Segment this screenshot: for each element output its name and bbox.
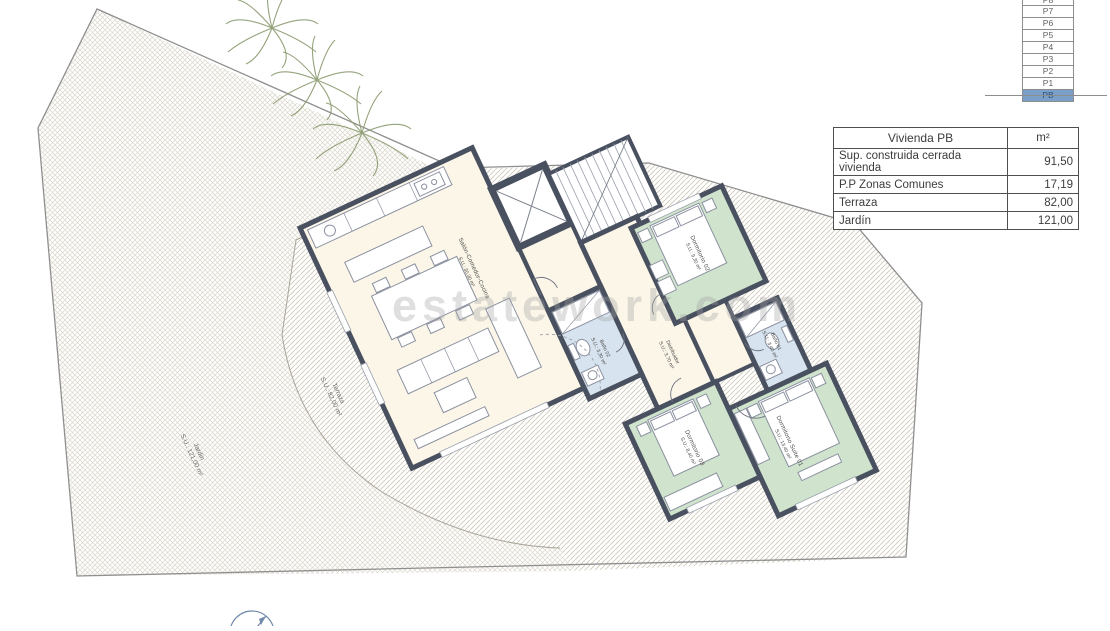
summary-table: Vivienda PB m² Sup. construida cerrada v… [833, 127, 1079, 230]
level-p4[interactable]: P4 [1022, 42, 1074, 54]
row-value: 17,19 [1008, 176, 1079, 194]
table-unit-header: m² [1008, 128, 1079, 149]
level-p2[interactable]: P2 [1022, 66, 1074, 78]
row-label: Terraza [834, 194, 1008, 212]
level-p6[interactable]: P6 [1022, 18, 1074, 30]
ground-line [985, 95, 1107, 96]
table-row: Terraza 82,00 [834, 194, 1079, 212]
row-label: P.P Zonas Comunes [834, 176, 1008, 194]
watermark: estatework.com [392, 280, 852, 332]
row-value: 82,00 [1008, 194, 1079, 212]
floor-plan-page: Salón-Comedor-Cocina S.U.: 30,30 m² Dorm… [0, 0, 1110, 626]
level-p1[interactable]: P1 [1022, 78, 1074, 90]
table-title: Vivienda PB [834, 128, 1008, 149]
row-value: 121,00 [1008, 212, 1079, 230]
floor-level-selector: P8 P7 P6 P5 P4 P3 P2 P1 PB [1022, 0, 1074, 102]
row-value: 91,50 [1008, 149, 1079, 176]
table-row: P.P Zonas Comunes 17,19 [834, 176, 1079, 194]
level-p5[interactable]: P5 [1022, 30, 1074, 42]
level-pb-selected[interactable]: PB [1022, 90, 1074, 102]
compass-icon [230, 611, 274, 626]
table-row: Sup. construida cerrada vivienda 91,50 [834, 149, 1079, 176]
level-p7[interactable]: P7 [1022, 6, 1074, 18]
row-label: Jardín [834, 212, 1008, 230]
table-row: Jardín 121,00 [834, 212, 1079, 230]
level-p3[interactable]: P3 [1022, 54, 1074, 66]
palm-tree-icon [226, 0, 318, 68]
row-label: Sup. construida cerrada vivienda [834, 149, 1008, 176]
